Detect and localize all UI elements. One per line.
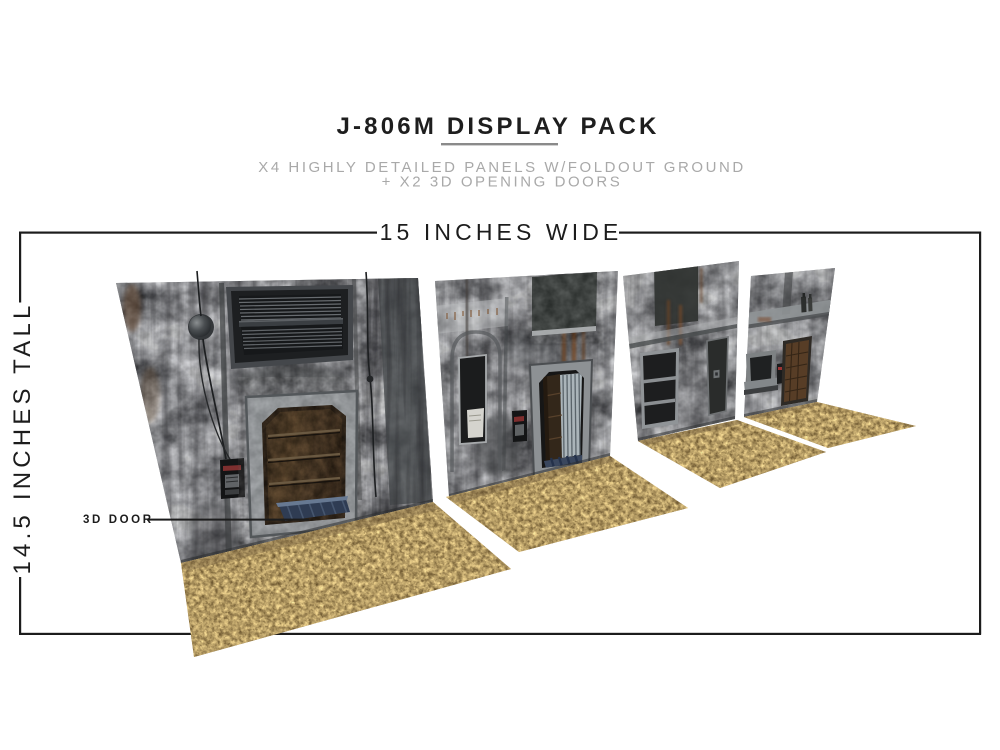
svg-text:3D DOOR: 3D DOOR [83,514,154,526]
svg-text:J-806M DISPLAY PACK: J-806M DISPLAY PACK [336,113,659,140]
svg-text:14.5 INCHES TALL: 14.5 INCHES TALL [9,301,36,574]
svg-text:+ X2 3D OPENING DOORS: + X2 3D OPENING DOORS [382,174,623,191]
svg-text:15 INCHES WIDE: 15 INCHES WIDE [380,219,623,245]
